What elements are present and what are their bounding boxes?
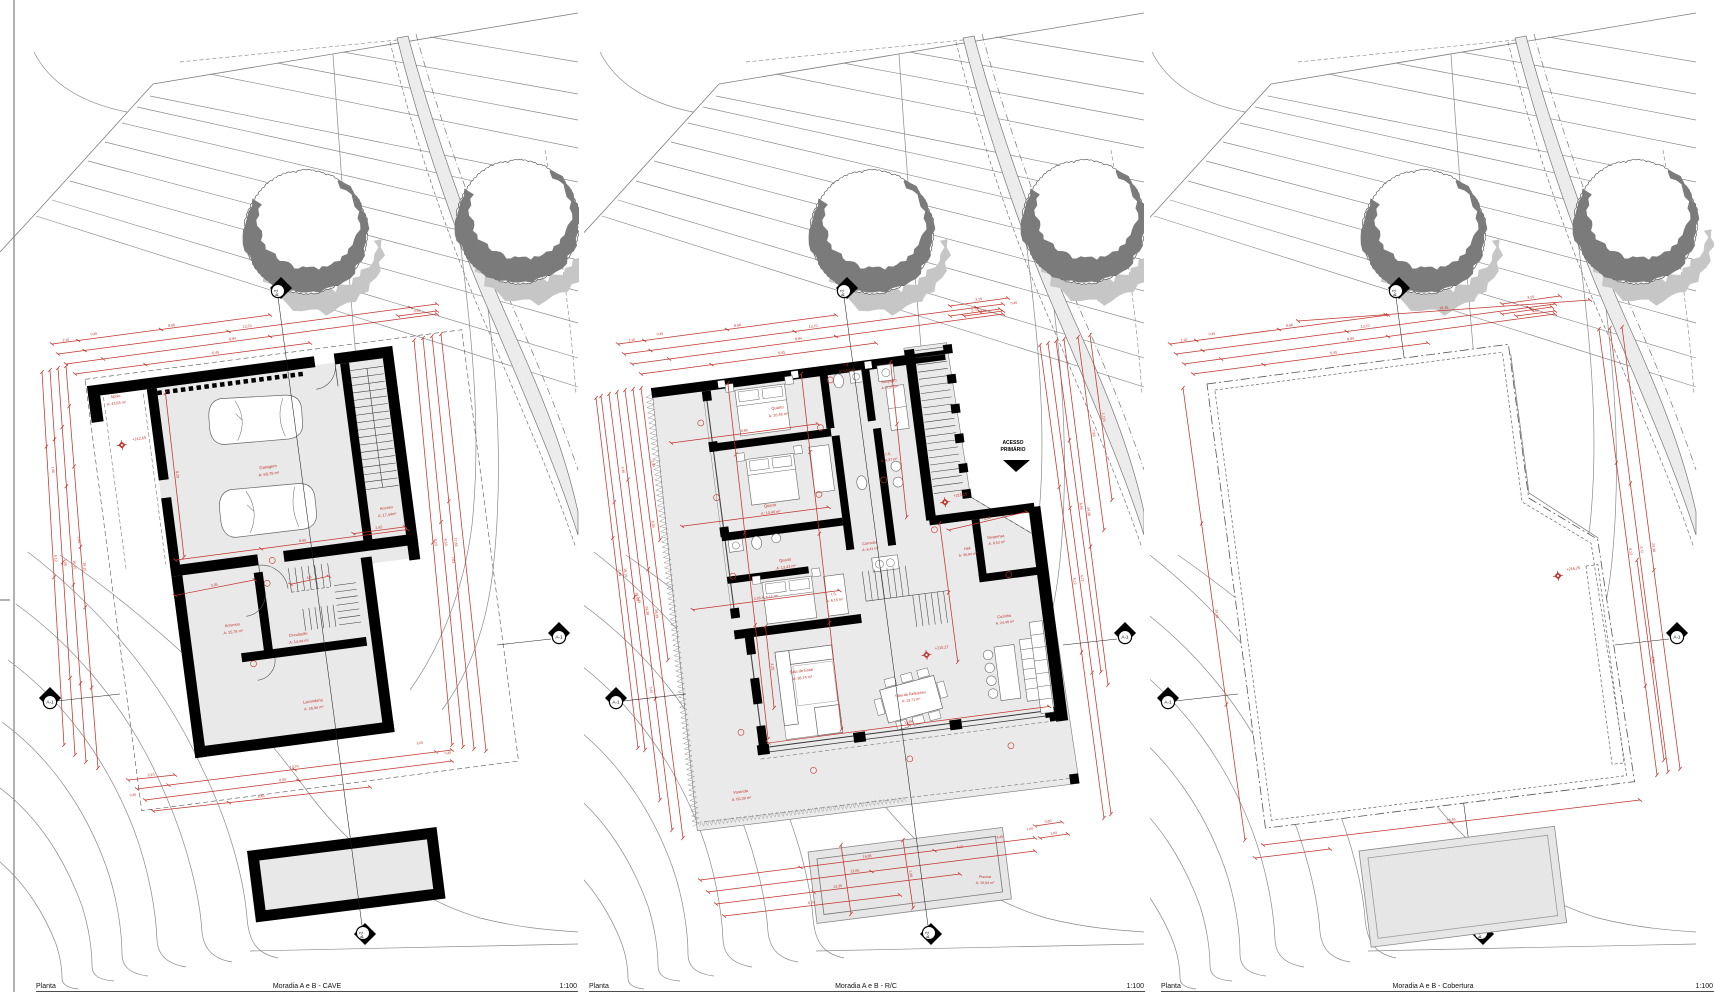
svg-text:Planta: Planta bbox=[589, 983, 609, 990]
svg-text:I.S.: I.S. bbox=[885, 452, 891, 457]
svg-text:2,10: 2,10 bbox=[148, 773, 155, 778]
svg-text:2,46: 2,46 bbox=[617, 569, 622, 576]
svg-text:5,45: 5,45 bbox=[649, 686, 654, 693]
svg-text:ACESSO: ACESSO bbox=[1002, 440, 1023, 446]
svg-text:PRIMÁRIO: PRIMÁRIO bbox=[1001, 446, 1026, 453]
svg-text:8,45: 8,45 bbox=[257, 794, 264, 799]
svg-text:1,60: 1,60 bbox=[51, 466, 55, 473]
svg-text:Moradia A e B - CAVE: Moradia A e B - CAVE bbox=[273, 983, 342, 990]
svg-text:Moradia A e B - Cobertura: Moradia A e B - Cobertura bbox=[1393, 983, 1474, 990]
svg-text:3,06: 3,06 bbox=[63, 559, 67, 566]
svg-text:I.S.: I.S. bbox=[843, 362, 849, 367]
svg-text:Piscina: Piscina bbox=[979, 875, 992, 879]
svg-text:2,44: 2,44 bbox=[77, 536, 81, 543]
svg-text:I.S.: I.S. bbox=[831, 592, 837, 597]
svg-text:4,25: 4,25 bbox=[770, 663, 775, 670]
svg-text:7,63: 7,63 bbox=[451, 556, 456, 563]
svg-text:8,12: 8,12 bbox=[53, 555, 57, 562]
svg-text:16,15: 16,15 bbox=[82, 562, 87, 571]
svg-text:3,48: 3,48 bbox=[637, 596, 642, 603]
svg-text:A: 19,64 m²: A: 19,64 m² bbox=[976, 881, 995, 885]
svg-text:2,46: 2,46 bbox=[621, 466, 626, 473]
svg-text:Planta: Planta bbox=[36, 983, 56, 990]
svg-text:1:100: 1:100 bbox=[1126, 983, 1144, 990]
svg-text:16,15: 16,15 bbox=[72, 560, 77, 569]
svg-text:8,29: 8,29 bbox=[175, 471, 180, 478]
svg-text:Planta: Planta bbox=[1161, 983, 1181, 990]
svg-text:1:100: 1:100 bbox=[559, 983, 577, 990]
svg-text:16,45: 16,45 bbox=[1439, 306, 1448, 311]
svg-text:8,70: 8,70 bbox=[808, 901, 815, 906]
svg-text:2,44: 2,44 bbox=[651, 460, 656, 467]
svg-text:1:100: 1:100 bbox=[1695, 983, 1713, 990]
svg-text:Moradia A e B - R/C: Moradia A e B - R/C bbox=[835, 983, 897, 990]
svg-text:8,23: 8,23 bbox=[433, 539, 438, 546]
svg-text:Hall: Hall bbox=[964, 546, 971, 551]
svg-text:8,53: 8,53 bbox=[443, 539, 448, 546]
